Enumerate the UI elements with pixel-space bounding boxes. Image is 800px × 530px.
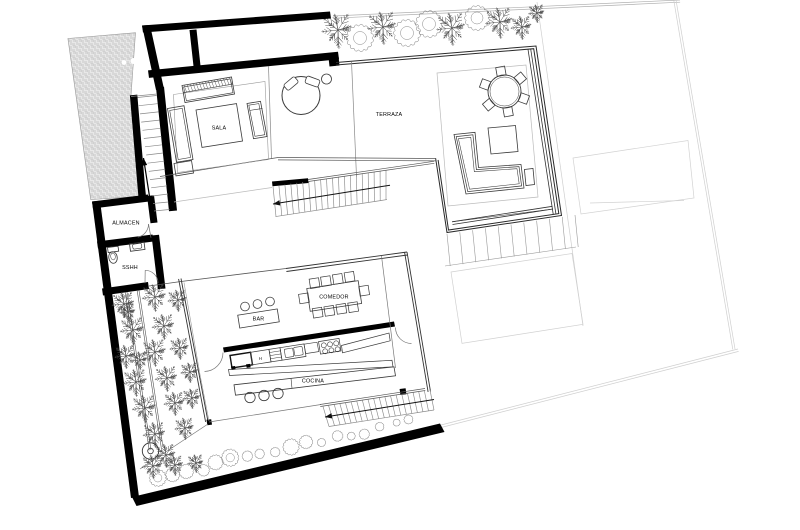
- svg-text:H: H: [259, 356, 262, 361]
- svg-text:BAR: BAR: [253, 317, 265, 323]
- svg-text:SALA: SALA: [212, 126, 227, 132]
- svg-text:TERRAZA: TERRAZA: [376, 112, 403, 118]
- svg-text:COCINA: COCINA: [302, 379, 324, 385]
- svg-text:ALMACEN: ALMACEN: [112, 221, 139, 227]
- svg-text:COMEDOR: COMEDOR: [319, 295, 349, 301]
- svg-text:SSHH: SSHH: [122, 265, 138, 271]
